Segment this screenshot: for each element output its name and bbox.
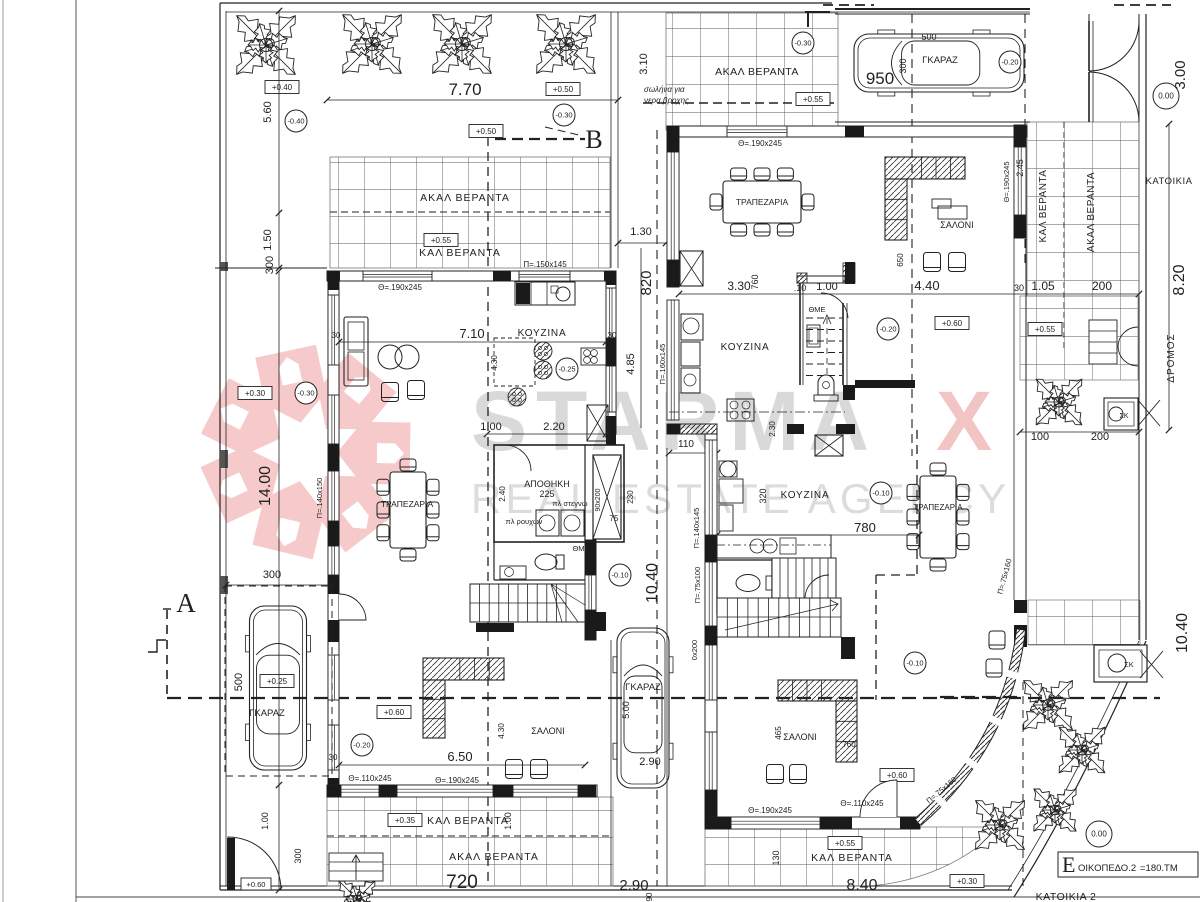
svg-text:ΚΑΛ ΒΕΡΑΝΤΑ: ΚΑΛ ΒΕΡΑΝΤΑ xyxy=(811,852,893,864)
svg-text:0.00: 0.00 xyxy=(1091,830,1107,839)
svg-text:30: 30 xyxy=(608,331,617,340)
svg-text:ΚΑΤΟΙΚΙΑ 2: ΚΑΤΟΙΚΙΑ 2 xyxy=(1036,891,1097,902)
svg-text:+0.60: +0.60 xyxy=(887,771,908,780)
svg-text:A: A xyxy=(176,588,196,618)
svg-text:-0.10: -0.10 xyxy=(906,659,923,668)
svg-text:6.50: 6.50 xyxy=(447,749,472,764)
svg-text:+0.55: +0.55 xyxy=(835,839,856,848)
svg-text:ΣΑΛΟΝΙ: ΣΑΛΟΝΙ xyxy=(940,220,973,230)
svg-text:5.60: 5.60 xyxy=(262,101,274,122)
svg-text:465: 465 xyxy=(774,726,783,740)
svg-text:-0.25: -0.25 xyxy=(558,365,575,374)
svg-text:Π=.140x150: Π=.140x150 xyxy=(315,478,324,519)
svg-text:75: 75 xyxy=(610,514,619,523)
svg-text:ΓΚΑΡΑΖ: ΓΚΑΡΑΖ xyxy=(922,55,958,66)
svg-text:300: 300 xyxy=(263,569,281,581)
svg-text:+0.25: +0.25 xyxy=(267,677,288,686)
svg-text:300: 300 xyxy=(264,256,276,274)
svg-text:14.00: 14.00 xyxy=(257,466,274,506)
svg-text:+0.50: +0.50 xyxy=(476,127,497,136)
svg-text:-0.20: -0.20 xyxy=(353,741,370,750)
svg-text:ΟΙΚΟΠΕΔΟ.2: ΟΙΚΟΠΕΔΟ.2 xyxy=(1078,863,1136,874)
svg-text:2.30: 2.30 xyxy=(768,421,777,437)
svg-text:-0.30: -0.30 xyxy=(555,111,572,120)
svg-text:780: 780 xyxy=(854,520,876,535)
svg-text:Θ=.190x245: Θ=.190x245 xyxy=(1002,161,1011,202)
svg-text:ΑΚΑΛ ΒΕΡΑΝΤΑ: ΑΚΑΛ ΒΕΡΑΝΤΑ xyxy=(420,192,510,204)
svg-text:-0.20: -0.20 xyxy=(1001,58,1018,67)
svg-text:+0.35: +0.35 xyxy=(395,816,416,825)
svg-text:4.40: 4.40 xyxy=(914,278,939,293)
svg-text:πλ ρουχων: πλ ρουχων xyxy=(506,517,543,526)
svg-text:30: 30 xyxy=(332,331,341,340)
svg-text:+0.40: +0.40 xyxy=(272,83,293,92)
svg-text:πλ στεγνω: πλ στεγνω xyxy=(552,499,587,508)
svg-text:Θ=.190x245: Θ=.190x245 xyxy=(748,806,792,815)
svg-text:νερα βροχης: νερα βροχης xyxy=(644,96,689,105)
svg-text:ΣΑΛΟΝΙ: ΣΑΛΟΝΙ xyxy=(783,732,816,742)
svg-text:-0.30: -0.30 xyxy=(297,389,314,398)
svg-text:950: 950 xyxy=(866,69,894,88)
svg-text:2.45: 2.45 xyxy=(1015,159,1025,177)
svg-text:σωλήνα για: σωλήνα για xyxy=(644,85,685,94)
svg-text:2.20: 2.20 xyxy=(543,421,564,433)
svg-text:ΘΜΕ: ΘΜΕ xyxy=(808,305,825,314)
svg-text:ΑΠΟΘΗΚΗ: ΑΠΟΘΗΚΗ xyxy=(524,479,570,489)
svg-text:+0.50: +0.50 xyxy=(553,85,574,94)
svg-text:ΣΚ: ΣΚ xyxy=(1124,660,1134,669)
svg-text:200: 200 xyxy=(1091,431,1109,443)
svg-text:ΑΚΑΛ ΒΕΡΑΝΤΑ: ΑΚΑΛ ΒΕΡΑΝΤΑ xyxy=(1086,172,1097,252)
svg-text:230: 230 xyxy=(626,490,635,504)
svg-text:Θ=.190x245: Θ=.190x245 xyxy=(738,139,782,148)
svg-text:1.00: 1.00 xyxy=(816,281,837,293)
svg-text:90: 90 xyxy=(645,892,654,901)
svg-text:ΓΚΑΡΑΖ: ΓΚΑΡΑΖ xyxy=(625,682,661,693)
svg-text:1.50: 1.50 xyxy=(262,229,274,250)
svg-text:4.85: 4.85 xyxy=(625,353,637,374)
svg-text:1.05: 1.05 xyxy=(1031,279,1055,293)
svg-text:Ε: Ε xyxy=(1062,852,1075,877)
svg-text:300: 300 xyxy=(898,58,908,73)
svg-text:110: 110 xyxy=(678,439,694,450)
svg-text:4.30: 4.30 xyxy=(490,355,499,371)
svg-text:130: 130 xyxy=(771,850,781,865)
svg-text:Π=.75x100: Π=.75x100 xyxy=(693,567,702,604)
svg-text:3.10: 3.10 xyxy=(638,53,650,74)
svg-text:-0.40: -0.40 xyxy=(287,117,304,126)
svg-text:=180.ΤΜ: =180.ΤΜ xyxy=(1140,863,1178,874)
svg-text:.10: .10 xyxy=(794,283,807,293)
svg-text:ΘΜΕ: ΘΜΕ xyxy=(572,544,589,553)
svg-text:+0.30: +0.30 xyxy=(957,877,978,886)
svg-text:+0.60: +0.60 xyxy=(384,708,405,717)
svg-text:ΚΟΥΖΙΝΑ: ΚΟΥΖΙΝΑ xyxy=(781,490,830,501)
svg-text:Θ=.110x245: Θ=.110x245 xyxy=(348,774,392,783)
svg-text:8.40: 8.40 xyxy=(846,877,877,894)
svg-text:ΣΑΛΟΝΙ: ΣΑΛΟΝΙ xyxy=(531,726,564,736)
svg-text:-0.10: -0.10 xyxy=(611,571,628,580)
svg-text:720: 720 xyxy=(446,872,478,893)
svg-text:ΑΚΑΛ ΒΕΡΑΝΤΑ: ΑΚΑΛ ΒΕΡΑΝΤΑ xyxy=(715,66,799,78)
svg-text:320: 320 xyxy=(758,488,768,503)
svg-text:2.90: 2.90 xyxy=(639,756,660,768)
svg-text:ΑΚΑΛ ΒΕΡΑΝΤΑ: ΑΚΑΛ ΒΕΡΑΝΤΑ xyxy=(449,851,539,863)
svg-text:-0.30: -0.30 xyxy=(794,39,811,48)
svg-text:1.00: 1.00 xyxy=(503,812,513,830)
svg-text:ΚΑΛ ΒΕΡΑΝΤΑ: ΚΑΛ ΒΕΡΑΝΤΑ xyxy=(427,815,509,827)
svg-text:ΚΟΥΖΙΝΑ: ΚΟΥΖΙΝΑ xyxy=(721,342,770,353)
svg-text:650: 650 xyxy=(896,253,905,267)
svg-text:1.00: 1.00 xyxy=(480,421,501,433)
svg-text:ΚΑΛ ΒΕΡΑΝΤΑ: ΚΑΛ ΒΕΡΑΝΤΑ xyxy=(1038,170,1049,243)
svg-text:+0.60: +0.60 xyxy=(942,319,963,328)
svg-text:2.90: 2.90 xyxy=(619,877,648,894)
svg-text:ΤΡΑΠΕΖΑΡΙΑ: ΤΡΑΠΕΖΑΡΙΑ xyxy=(381,499,434,509)
svg-text:5.00: 5.00 xyxy=(621,701,631,719)
svg-text:0x200: 0x200 xyxy=(690,640,699,660)
svg-text:3.00: 3.00 xyxy=(1172,60,1189,89)
svg-text:+0.55: +0.55 xyxy=(431,236,452,245)
svg-text:ΤΡΑΠΕΖΑΡΙΑ: ΤΡΑΠΕΖΑΡΙΑ xyxy=(913,503,963,512)
svg-text:Θ=.190x245: Θ=.190x245 xyxy=(378,283,422,292)
svg-text:760: 760 xyxy=(842,740,856,749)
svg-text:X: X xyxy=(936,374,992,468)
svg-text:500: 500 xyxy=(921,32,936,42)
svg-text:10.40: 10.40 xyxy=(644,563,661,603)
svg-text:ΔΡΟΜΟΣ: ΔΡΟΜΟΣ xyxy=(1166,333,1177,382)
svg-text:+0.60: +0.60 xyxy=(247,880,266,889)
svg-text:1.30: 1.30 xyxy=(630,226,651,238)
svg-text:100: 100 xyxy=(1031,431,1049,443)
svg-text:3.30: 3.30 xyxy=(727,279,751,293)
svg-text:-0.10: -0.10 xyxy=(872,489,889,498)
svg-text:-0.20: -0.20 xyxy=(879,325,896,334)
svg-text:Π=.140x145: Π=.140x145 xyxy=(692,508,701,549)
svg-text:0.00: 0.00 xyxy=(1158,92,1174,101)
svg-text:7.10: 7.10 xyxy=(459,326,484,341)
svg-text:Θ=.110x245: Θ=.110x245 xyxy=(840,799,884,808)
svg-text:+0.55: +0.55 xyxy=(1035,325,1056,334)
svg-text:300: 300 xyxy=(293,848,303,863)
svg-text:Π=.160x145: Π=.160x145 xyxy=(658,344,667,385)
svg-text:30: 30 xyxy=(1014,283,1024,293)
svg-text:200: 200 xyxy=(1092,279,1112,293)
svg-text:+0.30: +0.30 xyxy=(245,389,266,398)
svg-text:B: B xyxy=(585,125,602,154)
svg-text:225: 225 xyxy=(539,489,554,499)
svg-text:30: 30 xyxy=(329,753,338,762)
svg-text:8.20: 8.20 xyxy=(1171,264,1188,295)
svg-text:Π=.150x145: Π=.150x145 xyxy=(523,260,567,269)
svg-text:ΓΚΑΡΑΖ: ΓΚΑΡΑΖ xyxy=(249,708,285,719)
svg-text:10.40: 10.40 xyxy=(1174,613,1191,653)
svg-text:2.40: 2.40 xyxy=(498,486,507,502)
svg-text:7.70: 7.70 xyxy=(448,80,481,99)
svg-text:90x200: 90x200 xyxy=(595,488,602,511)
svg-text:ΚΟΥΖΙΝΑ: ΚΟΥΖΙΝΑ xyxy=(518,328,567,339)
svg-text:500: 500 xyxy=(233,673,245,691)
svg-text:1.00: 1.00 xyxy=(260,812,270,830)
svg-text:ΤΡΑΠΕΖΑΡΙΑ: ΤΡΑΠΕΖΑΡΙΑ xyxy=(736,197,789,207)
svg-text:760: 760 xyxy=(750,274,760,289)
svg-text:Θ=.190x245: Θ=.190x245 xyxy=(435,776,479,785)
svg-text:4.30: 4.30 xyxy=(497,723,506,739)
svg-text:ΣΚ: ΣΚ xyxy=(1120,413,1129,420)
svg-text:+0.55: +0.55 xyxy=(803,95,824,104)
svg-text:820: 820 xyxy=(638,270,655,295)
